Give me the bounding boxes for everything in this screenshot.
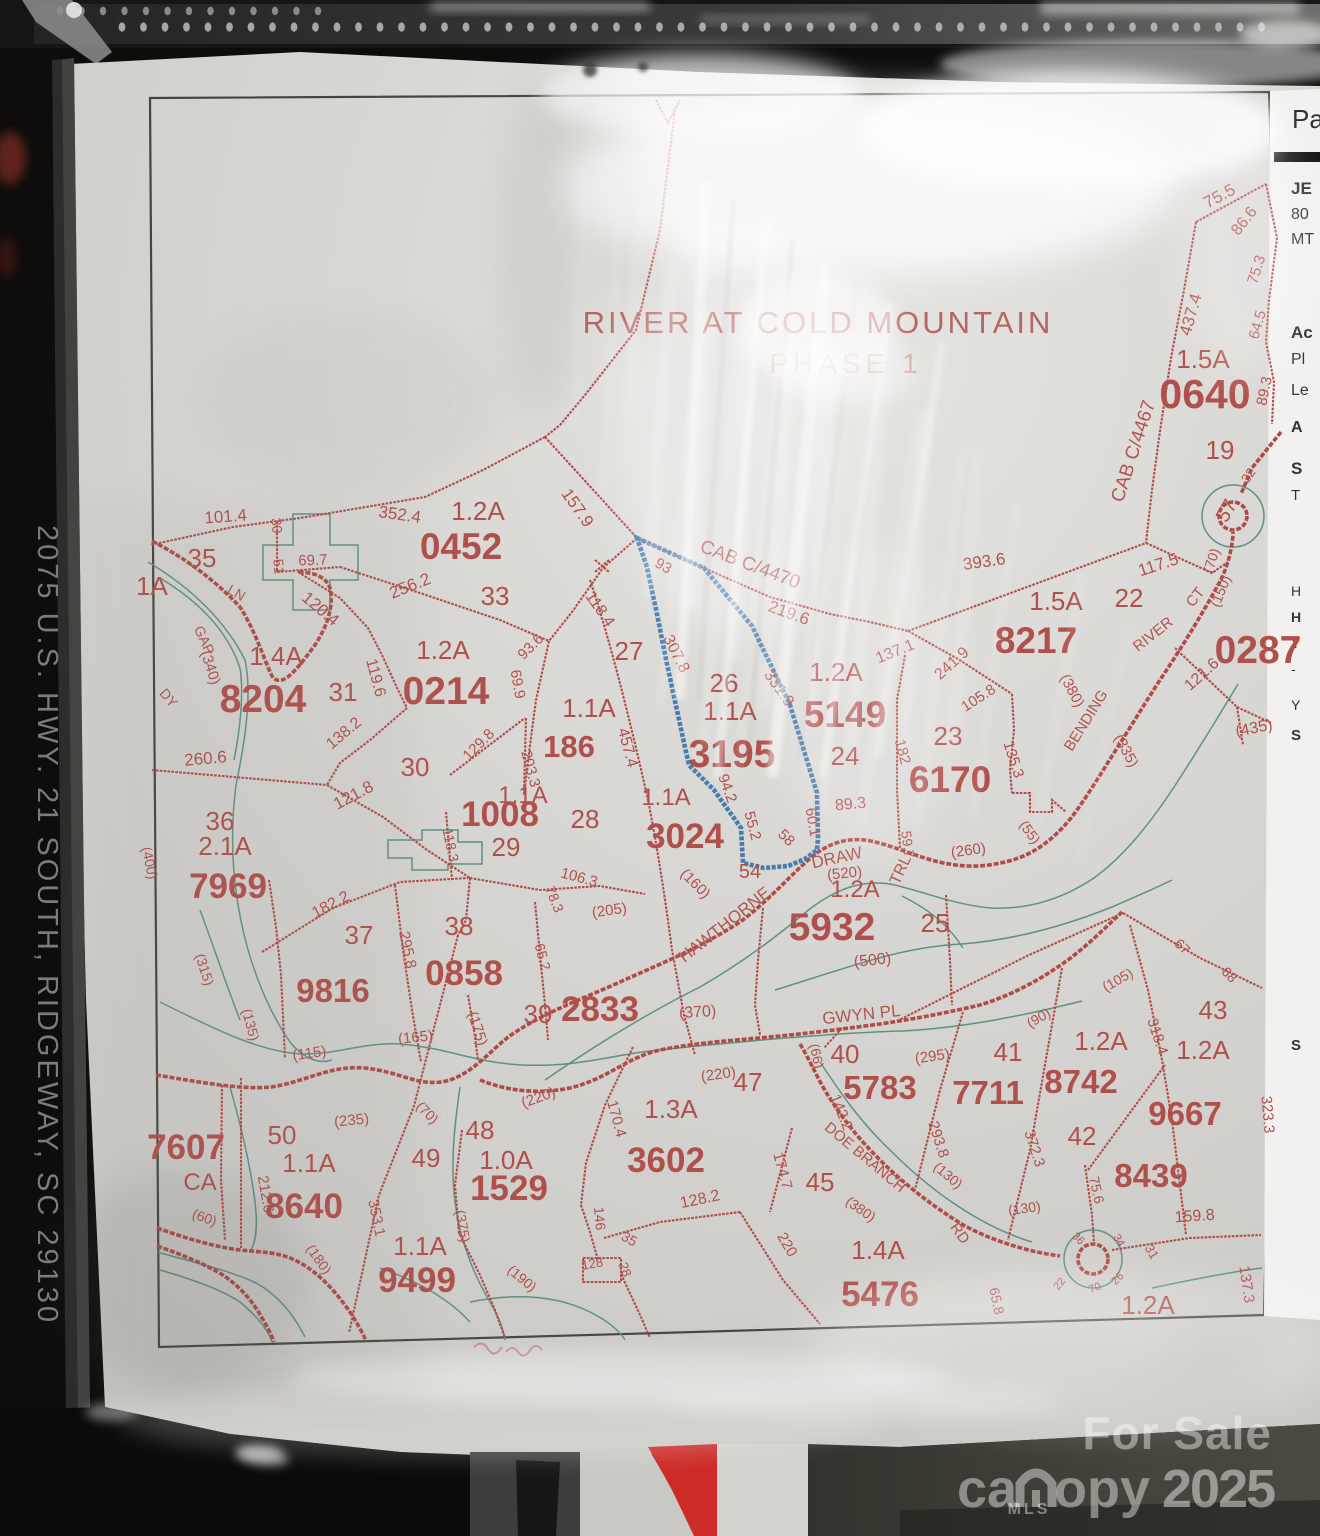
svg-text:9667: 9667 xyxy=(1148,1095,1221,1132)
svg-text:54: 54 xyxy=(739,861,761,883)
svg-text:48: 48 xyxy=(466,1115,495,1145)
svg-text:0858: 0858 xyxy=(425,954,503,993)
svg-text:0452: 0452 xyxy=(420,526,502,567)
svg-text:25: 25 xyxy=(921,908,950,938)
svg-text:27: 27 xyxy=(615,636,644,666)
svg-text:Y: Y xyxy=(1291,697,1301,713)
svg-text:H: H xyxy=(1291,583,1301,599)
svg-text:Pl: Pl xyxy=(1291,351,1305,368)
svg-text:1.4A: 1.4A xyxy=(851,1235,905,1265)
svg-text:323.3: 323.3 xyxy=(1257,1095,1277,1134)
svg-text:40: 40 xyxy=(831,1039,860,1069)
svg-text:8217: 8217 xyxy=(995,620,1077,661)
svg-text:19: 19 xyxy=(1206,435,1235,465)
svg-text:2025: 2025 xyxy=(1162,1459,1275,1519)
svg-text:H: H xyxy=(1291,609,1301,625)
svg-text:Le: Le xyxy=(1291,382,1309,399)
svg-text:Pa: Pa xyxy=(1292,104,1320,134)
svg-text:3602: 3602 xyxy=(627,1141,705,1180)
svg-text:41: 41 xyxy=(994,1037,1023,1067)
svg-text:1.2A: 1.2A xyxy=(1074,1026,1128,1056)
svg-text:1.3A: 1.3A xyxy=(644,1094,698,1124)
svg-text:1.0A: 1.0A xyxy=(479,1145,533,1175)
svg-text:1.1A: 1.1A xyxy=(498,782,547,809)
svg-text:39: 39 xyxy=(524,999,553,1029)
svg-text:5932: 5932 xyxy=(789,906,876,949)
svg-text:42: 42 xyxy=(1068,1121,1097,1151)
svg-text:47: 47 xyxy=(734,1067,763,1097)
svg-text:opy: opy xyxy=(1054,1459,1150,1519)
svg-text:186: 186 xyxy=(543,729,595,764)
svg-text:0287: 0287 xyxy=(1215,629,1302,672)
svg-text:A: A xyxy=(1291,419,1303,436)
svg-text:28: 28 xyxy=(571,804,600,834)
svg-text:1.1A: 1.1A xyxy=(562,693,616,723)
svg-text:1.2A: 1.2A xyxy=(451,496,505,526)
svg-text:2833: 2833 xyxy=(561,990,639,1029)
svg-text:7711: 7711 xyxy=(952,1074,1024,1111)
svg-text:33: 33 xyxy=(481,581,510,611)
svg-text:S: S xyxy=(1291,727,1301,744)
svg-text:159.8: 159.8 xyxy=(1174,1207,1215,1227)
svg-text:Ac: Ac xyxy=(1291,323,1313,342)
svg-text:22: 22 xyxy=(1115,583,1144,613)
svg-text:8439: 8439 xyxy=(1114,1157,1187,1194)
svg-text:1.1A: 1.1A xyxy=(641,784,690,811)
svg-text:S: S xyxy=(1291,459,1302,478)
svg-text:38: 38 xyxy=(445,911,474,941)
svg-text:45: 45 xyxy=(806,1167,835,1197)
svg-text:29: 29 xyxy=(492,832,521,862)
svg-text:2075 U.S. HWY. 21 SOUTH, RIDGE: 2075 U.S. HWY. 21 SOUTH, RIDGEWAY, SC 29… xyxy=(31,525,63,1325)
svg-text:T: T xyxy=(1291,487,1300,504)
svg-text:S: S xyxy=(1291,1037,1301,1054)
svg-text:1.2A: 1.2A xyxy=(416,635,470,665)
svg-text:3024: 3024 xyxy=(646,817,724,856)
svg-text:(370): (370) xyxy=(678,1003,716,1023)
svg-text:8742: 8742 xyxy=(1044,1063,1117,1100)
svg-text:5783: 5783 xyxy=(843,1069,916,1106)
svg-text:For Sale: For Sale xyxy=(1082,1407,1272,1459)
svg-text:43: 43 xyxy=(1199,995,1228,1025)
svg-text:1.2A: 1.2A xyxy=(1176,1035,1230,1065)
svg-text:146: 146 xyxy=(591,1206,609,1231)
svg-text:MLS: MLS xyxy=(1008,1501,1051,1518)
